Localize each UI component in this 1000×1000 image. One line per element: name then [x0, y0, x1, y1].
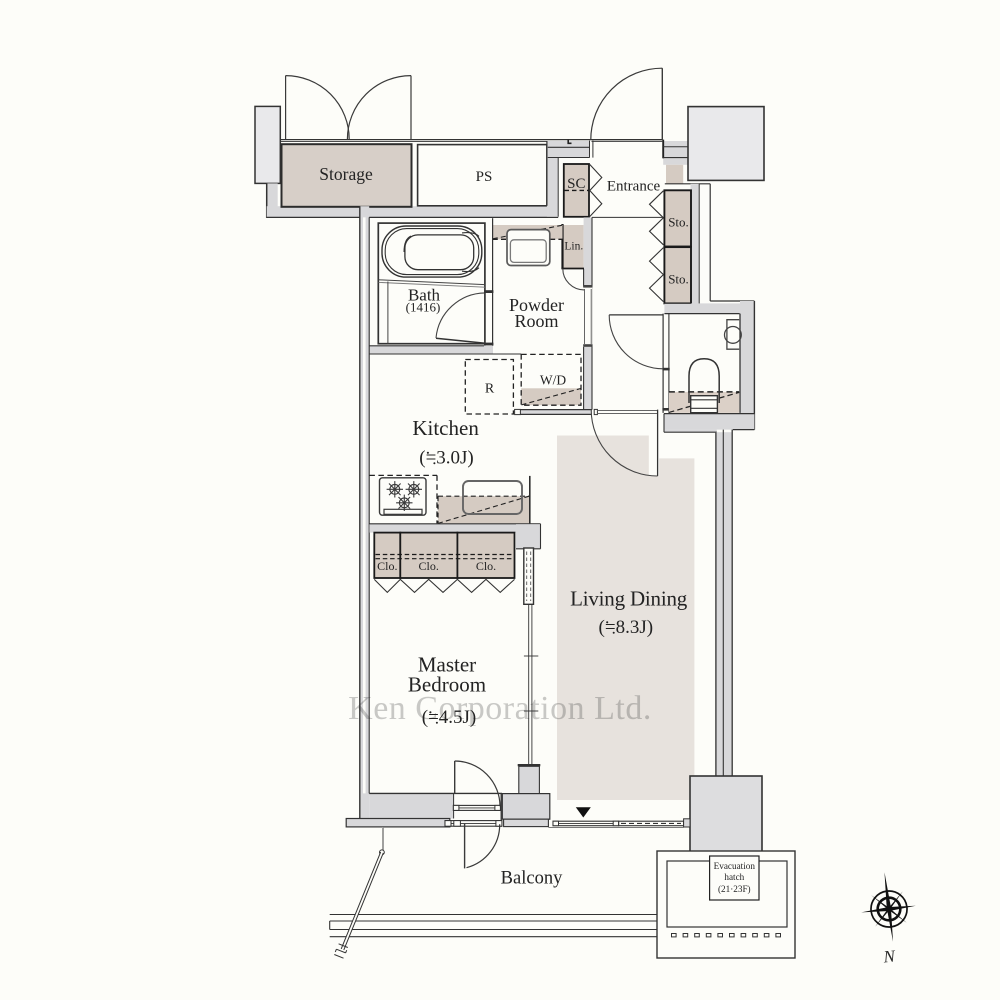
svg-text:Balcony: Balcony — [501, 869, 563, 889]
svg-text:Ken Corporation Ltd.: Ken Corporation Ltd. — [348, 690, 652, 727]
svg-text:Living Dining: Living Dining — [570, 587, 688, 611]
svg-text:R: R — [485, 382, 495, 397]
svg-text:(21·23F): (21·23F) — [718, 884, 751, 894]
svg-text:Lin.: Lin. — [564, 241, 583, 253]
svg-text:PS: PS — [476, 169, 493, 185]
svg-text:Sto.: Sto. — [668, 215, 689, 230]
svg-text:Kitchen: Kitchen — [412, 416, 479, 440]
svg-text:Clo.: Clo. — [476, 559, 496, 573]
svg-text:Sto.: Sto. — [668, 272, 689, 287]
svg-text:W/D: W/D — [540, 373, 566, 388]
svg-text:SC: SC — [567, 176, 585, 192]
svg-text:(=8.3J): (=8.3J) — [599, 617, 654, 638]
svg-text:Evacuation: Evacuation — [714, 861, 756, 871]
svg-text:Clo.: Clo. — [419, 559, 439, 573]
svg-text:hatch: hatch — [724, 872, 744, 882]
svg-text:Room: Room — [514, 311, 558, 331]
svg-text:Storage: Storage — [319, 164, 373, 184]
svg-text:(=3.0J): (=3.0J) — [419, 448, 474, 469]
svg-text:Entrance: Entrance — [607, 179, 661, 195]
svg-text:(1416): (1416) — [406, 300, 441, 315]
svg-text:Clo.: Clo. — [377, 559, 397, 573]
